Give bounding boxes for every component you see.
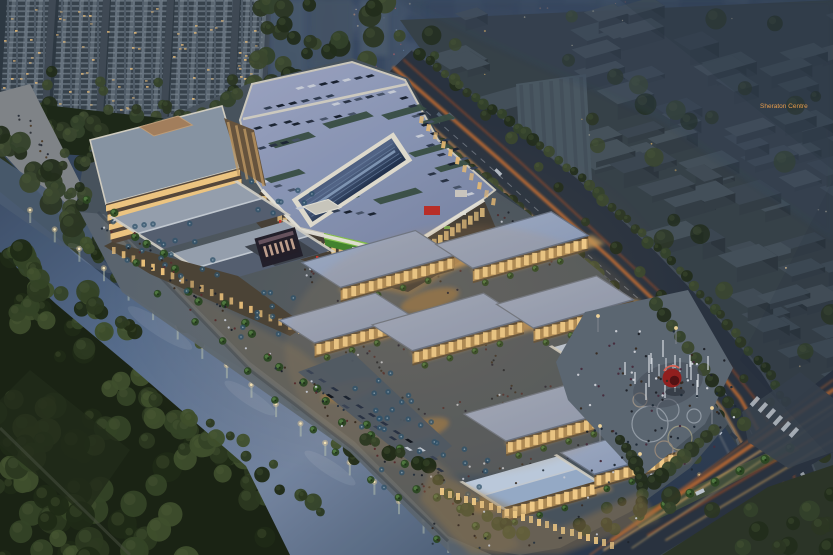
svg-text:Sheraton Centre: Sheraton Centre	[760, 103, 808, 110]
